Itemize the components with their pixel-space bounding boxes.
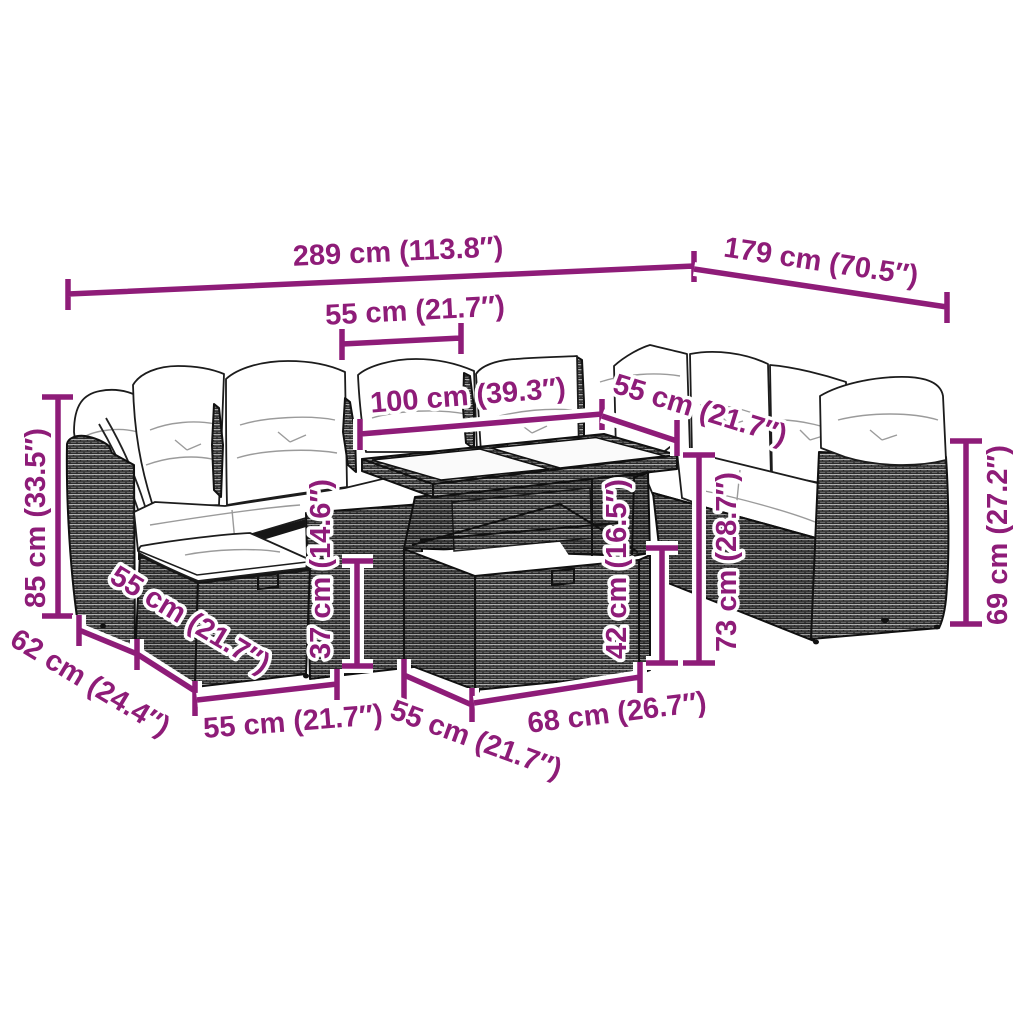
svg-text:69 cm (27.2″): 69 cm (27.2″) xyxy=(982,445,1014,625)
svg-text:37 cm (14.6″): 37 cm (14.6″) xyxy=(305,479,337,659)
svg-text:73 cm (28.7″): 73 cm (28.7″) xyxy=(711,472,743,652)
svg-text:85 cm (33.5″): 85 cm (33.5″) xyxy=(20,428,52,608)
svg-text:42 cm (16.5″): 42 cm (16.5″) xyxy=(601,479,633,659)
